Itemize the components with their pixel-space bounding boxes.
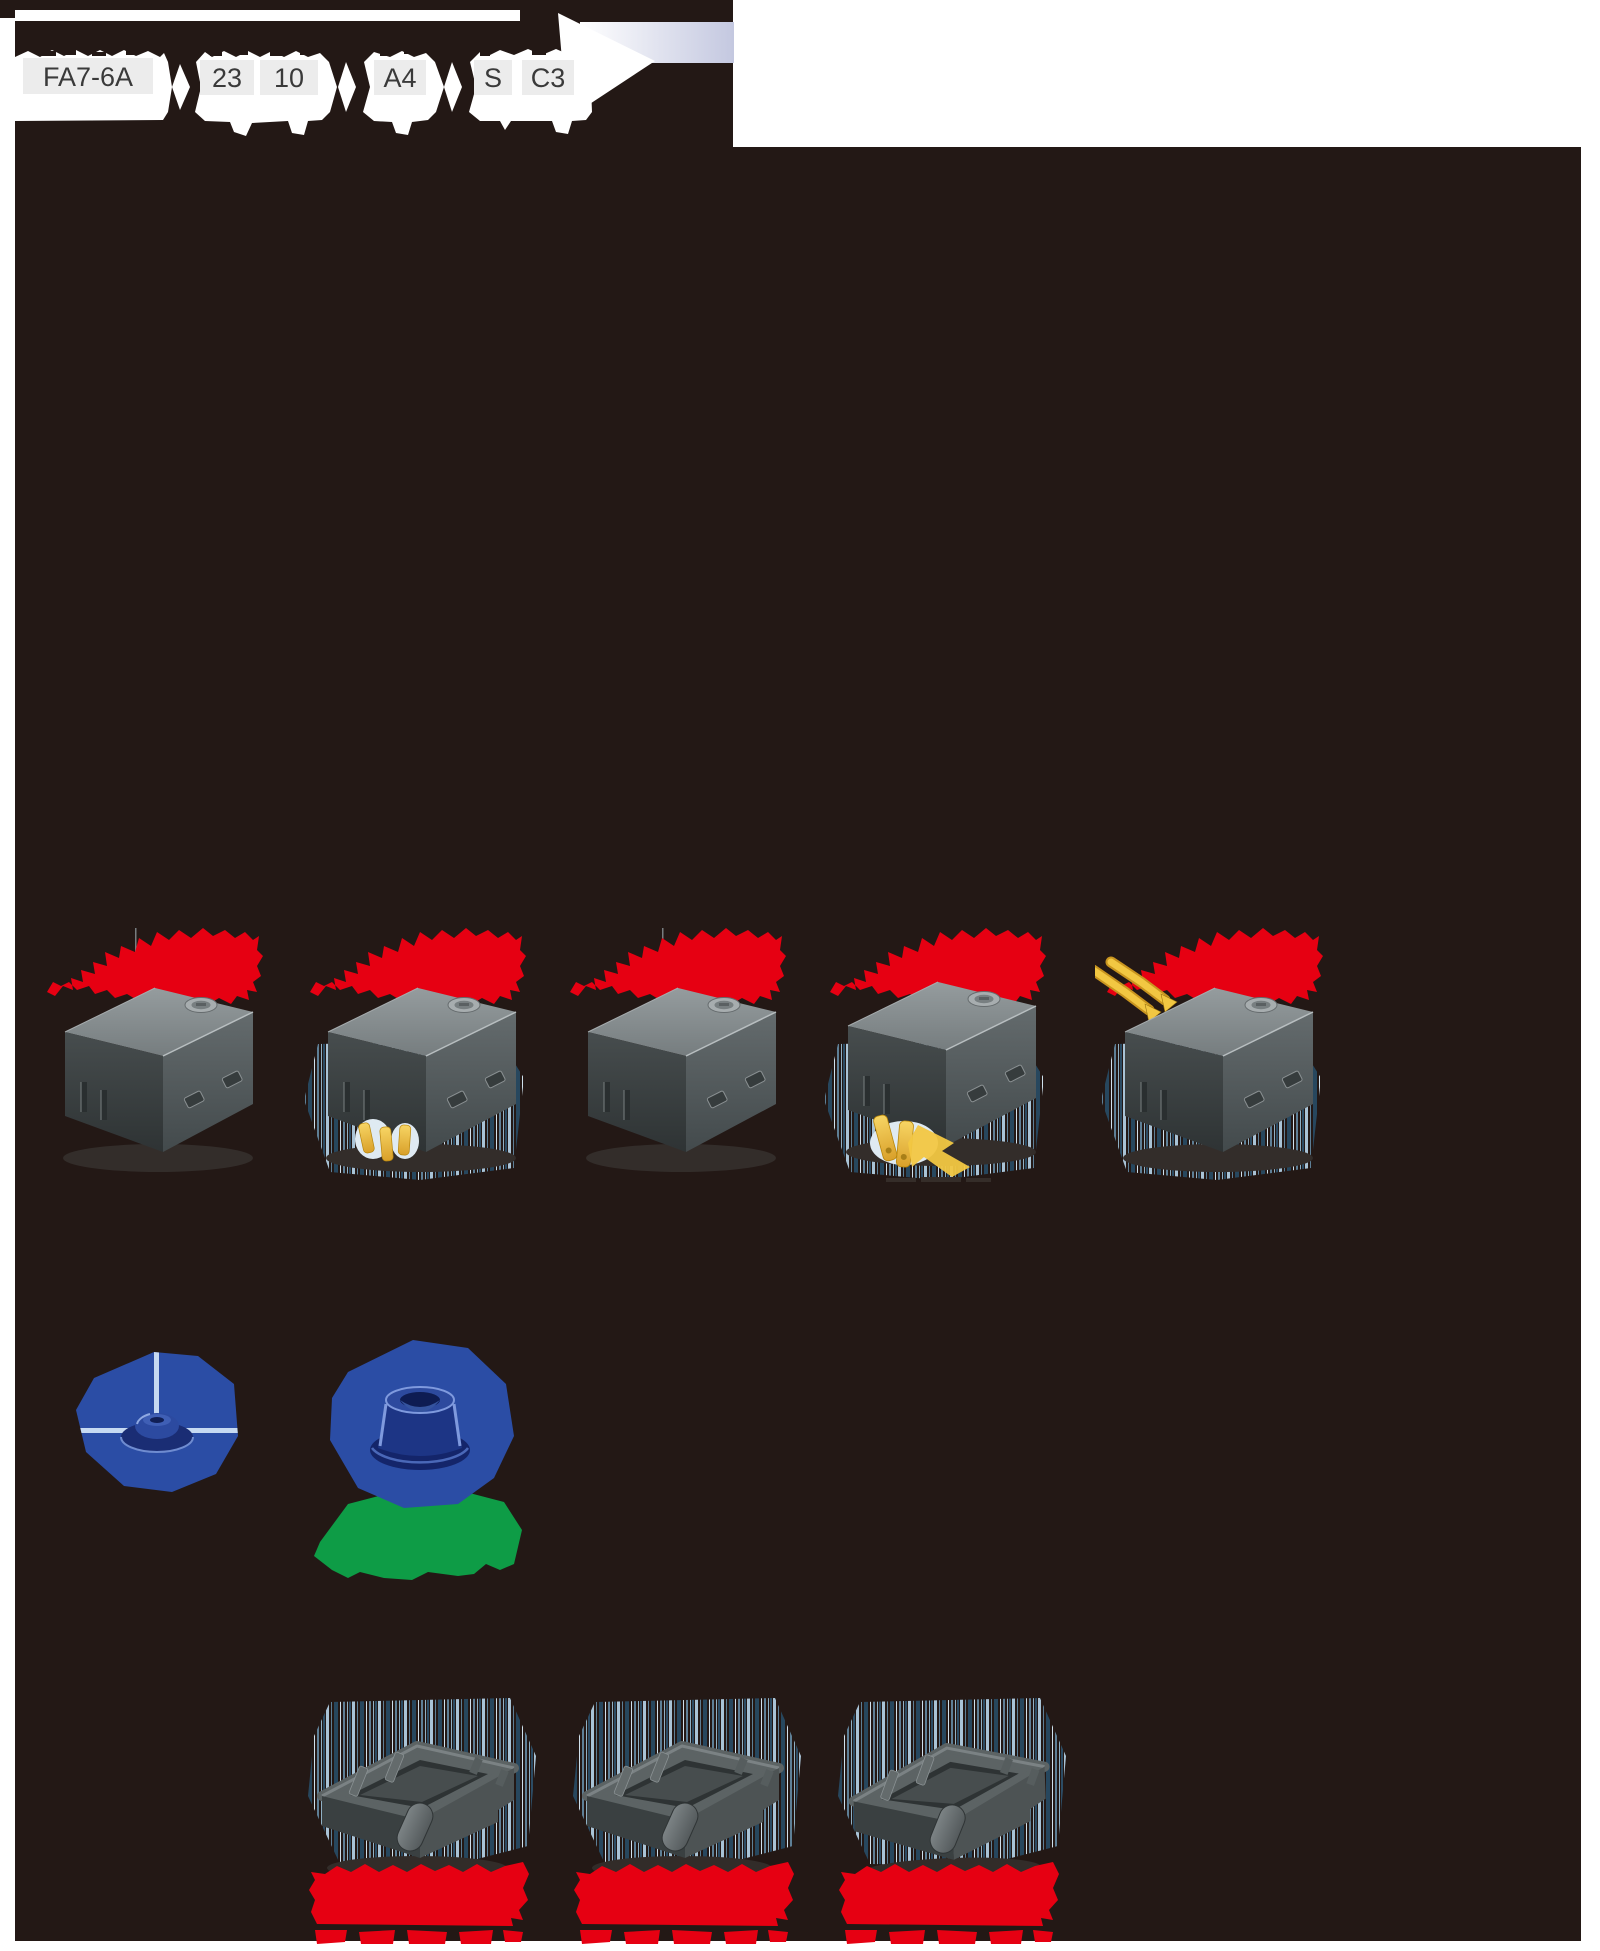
part-number-builder: FA7-6A 23 10 A4 S C3 (0, 0, 1600, 160)
product-photo-row1-4 (818, 922, 1058, 1182)
rubber-grommet-small (66, 1340, 251, 1510)
relay-box-photo (63, 988, 253, 1182)
product-photo-row1-5 (1095, 922, 1335, 1182)
segment-label-code6: C3 (531, 63, 566, 93)
relay-box-photo (586, 988, 776, 1182)
left-margin (0, 18, 15, 1951)
segment-label-code5: S (484, 63, 502, 93)
segment-label-code3: 10 (274, 63, 304, 93)
product-photo-row1-1 (35, 922, 275, 1182)
segment-boxes: FA7-6A 23 10 A4 S C3 (23, 58, 574, 95)
red-scribble-annotation (574, 1862, 794, 1944)
segment-separator-icon (444, 62, 462, 112)
segment-label-model: FA7-6A (43, 62, 133, 92)
product-photo-base-3 (822, 1688, 1077, 1951)
product-photo-base-1 (292, 1688, 547, 1951)
rubber-grommet-large (308, 1332, 536, 1594)
segment-separator-icon (172, 64, 190, 110)
product-photo-base-2 (557, 1688, 812, 1951)
product-photo-row1-2 (298, 922, 538, 1182)
product-photo-row1-3 (558, 922, 798, 1182)
header-top-sliver (15, 10, 520, 21)
segment-label-code2: 23 (212, 63, 242, 93)
segment-label-code4: A4 (383, 63, 416, 93)
right-margin (1581, 0, 1600, 1951)
segment-separator-icon (338, 62, 356, 112)
catalog-page: FA7-6A 23 10 A4 S C3 (0, 0, 1600, 1951)
red-scribble-annotation (309, 1862, 529, 1944)
relay-box-photo (326, 988, 516, 1182)
red-scribble-annotation (839, 1862, 1059, 1944)
